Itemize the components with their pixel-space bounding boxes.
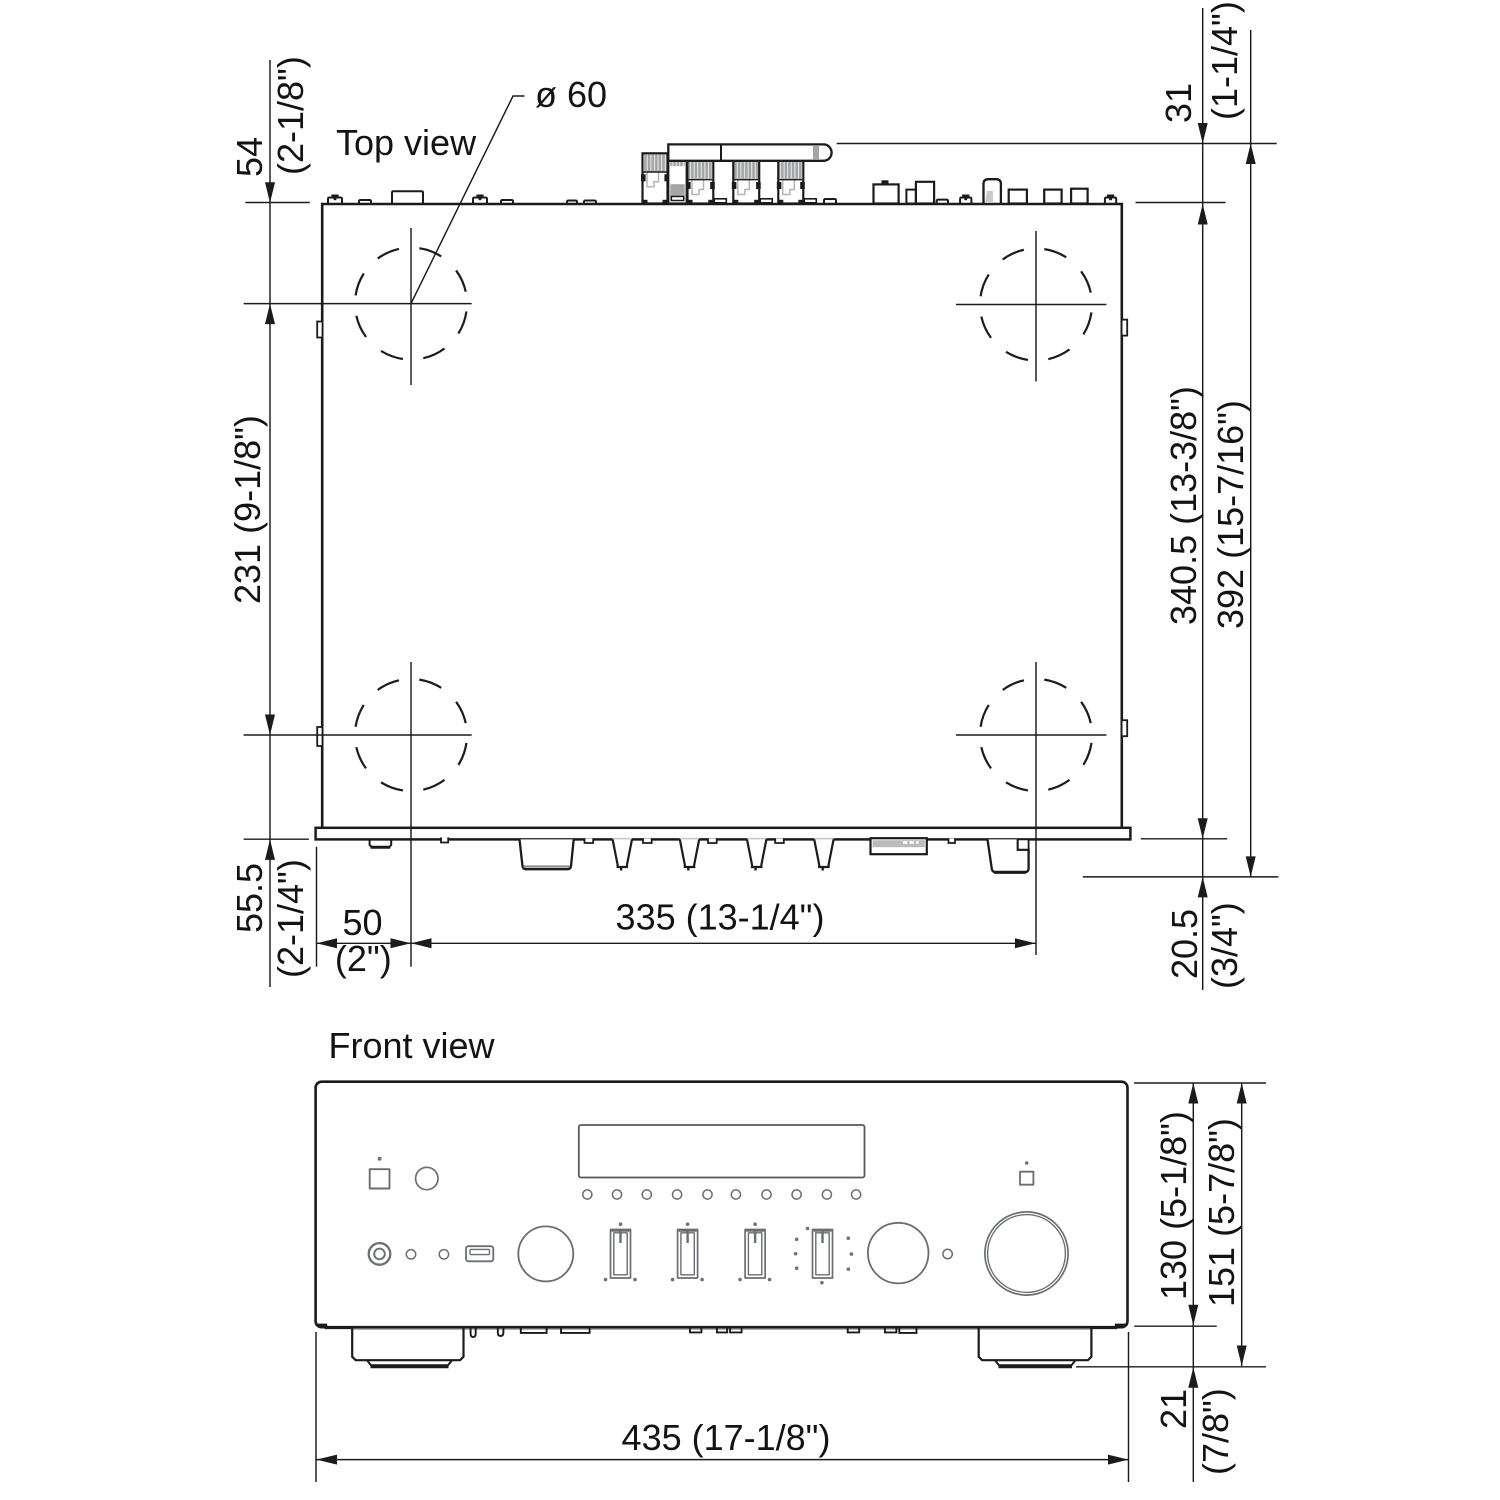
svg-text:231 (9-1/8"): 231 (9-1/8"): [227, 415, 268, 604]
svg-text:(2-1/4"): (2-1/4"): [270, 859, 311, 978]
svg-text:20.5: 20.5: [1164, 909, 1205, 979]
svg-text:21: 21: [1153, 1389, 1194, 1429]
svg-text:(2"): (2"): [335, 938, 392, 979]
svg-text:31: 31: [1158, 83, 1199, 123]
svg-text:435 (17-1/8"): 435 (17-1/8"): [622, 1417, 831, 1458]
svg-text:392 (15-7/16"): 392 (15-7/16"): [1210, 400, 1251, 629]
svg-text:ø 60: ø 60: [535, 74, 607, 115]
svg-text:151 (5-7/8"): 151 (5-7/8"): [1201, 1118, 1242, 1307]
svg-text:(2-1/8"): (2-1/8"): [270, 56, 311, 175]
svg-text:(1-1/4"): (1-1/4"): [1204, 1, 1245, 120]
svg-text:130 (5-1/8"): 130 (5-1/8"): [1153, 1111, 1194, 1300]
svg-text:335 (13-1/4"): 335 (13-1/4"): [616, 897, 825, 938]
svg-text:Top view: Top view: [336, 122, 477, 163]
svg-text:Front view: Front view: [329, 1025, 496, 1066]
svg-text:54: 54: [229, 137, 270, 177]
svg-text:340.5 (13-3/8"): 340.5 (13-3/8"): [1163, 386, 1204, 625]
svg-text:50: 50: [342, 902, 382, 943]
svg-text:55.5: 55.5: [229, 863, 270, 933]
svg-text:(3/4"): (3/4"): [1204, 902, 1245, 989]
svg-text:(7/8"): (7/8"): [1195, 1388, 1236, 1475]
